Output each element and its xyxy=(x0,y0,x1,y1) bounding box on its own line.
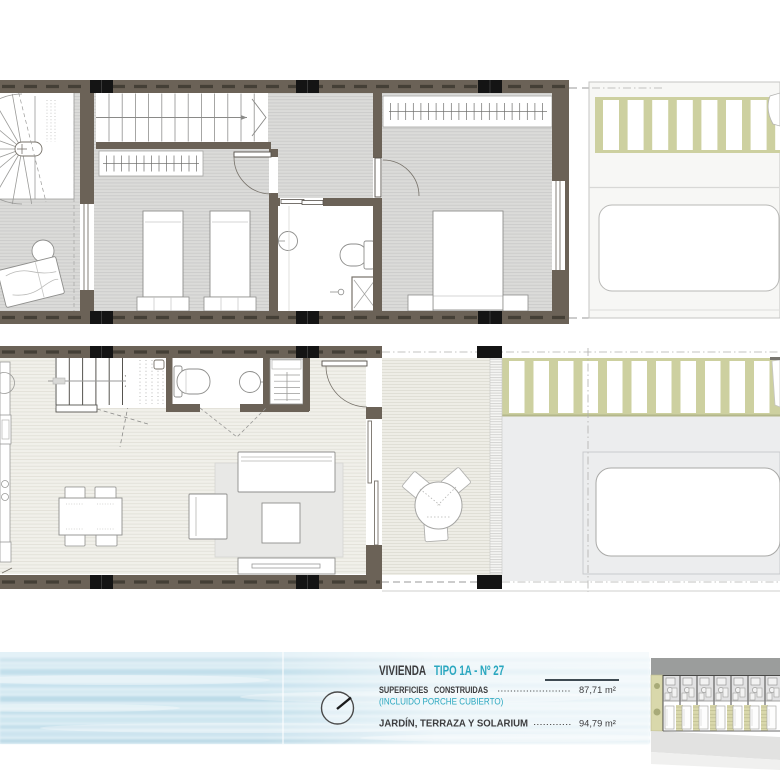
svg-text:TIPO 1A - Nº 27: TIPO 1A - Nº 27 xyxy=(434,664,504,679)
svg-text:94,79: 94,79 xyxy=(579,719,602,729)
svg-text:m²: m² xyxy=(605,685,616,695)
svg-text:87,71: 87,71 xyxy=(579,685,602,695)
svg-text:(INCLUIDO PORCHE CUBIERTO): (INCLUIDO PORCHE CUBIERTO) xyxy=(379,696,503,707)
svg-text:VIVIENDA: VIVIENDA xyxy=(379,662,426,678)
svg-text:SUPERFICIES CONSTRUIDAS: SUPERFICIES CONSTRUIDAS xyxy=(379,684,488,695)
svg-text:JARDÍN, TERRAZA Y SOLARIUM: JARDÍN, TERRAZA Y SOLARIUM xyxy=(379,718,528,729)
svg-text:m²: m² xyxy=(605,719,616,729)
